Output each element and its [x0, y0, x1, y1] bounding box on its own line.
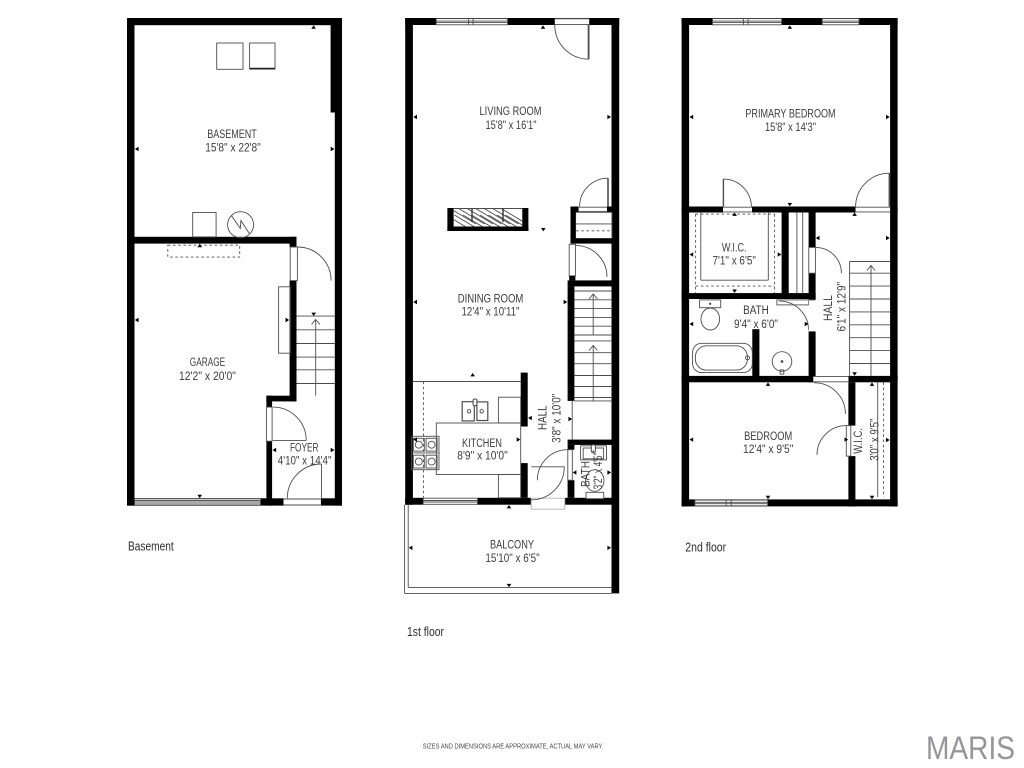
svg-text:FOYER: FOYER [290, 440, 319, 454]
svg-text:GARAGE: GARAGE [190, 355, 225, 369]
svg-text:W.I.C.: W.I.C. [722, 241, 747, 255]
svg-text:8'9" x 10'0": 8'9" x 10'0" [457, 449, 507, 462]
svg-text:15'8" x 16'1": 15'8" x 16'1" [486, 119, 537, 132]
svg-text:LIVING ROOM: LIVING ROOM [480, 104, 542, 118]
svg-text:15'8" x 14'3": 15'8" x 14'3" [765, 121, 816, 134]
svg-text:BALCONY: BALCONY [490, 537, 534, 551]
svg-text:BASEMENT: BASEMENT [207, 127, 257, 141]
svg-text:1st floor: 1st floor [407, 625, 444, 639]
svg-text:6'1" x 12'9": 6'1" x 12'9" [836, 282, 849, 332]
svg-text:15'10" x 6'5": 15'10" x 6'5" [485, 552, 539, 565]
svg-text:MARIS: MARIS [926, 730, 1015, 766]
svg-text:KITCHEN: KITCHEN [462, 436, 502, 450]
svg-text:SIZES AND DIMENSIONS ARE APPRO: SIZES AND DIMENSIONS ARE APPROXIMATE, AC… [423, 744, 604, 751]
svg-text:BATH: BATH [579, 461, 593, 487]
svg-text:7'1" x 6'5": 7'1" x 6'5" [713, 255, 756, 268]
svg-text:3'2" x 4'5": 3'2" x 4'5" [592, 453, 605, 490]
svg-text:9'4" x 6'0": 9'4" x 6'0" [734, 318, 778, 331]
svg-text:12'4" x 10'11": 12'4" x 10'11" [462, 306, 520, 319]
svg-text:Basement: Basement [128, 539, 174, 553]
svg-text:3'8" x 10'0": 3'8" x 10'0" [550, 394, 563, 443]
svg-text:12'2" x 20'0": 12'2" x 20'0" [179, 370, 236, 383]
svg-text:BATH: BATH [743, 303, 769, 317]
svg-text:HALL: HALL [536, 405, 550, 430]
svg-text:3'0" x 9'5": 3'0" x 9'5" [868, 419, 881, 461]
svg-text:2nd floor: 2nd floor [685, 540, 726, 554]
svg-text:PRIMARY BEDROOM: PRIMARY BEDROOM [745, 107, 835, 121]
svg-text:HALL: HALL [821, 295, 835, 321]
svg-text:BEDROOM: BEDROOM [744, 429, 792, 443]
svg-text:4'10" x 14'4": 4'10" x 14'4" [278, 454, 332, 467]
svg-text:12'4" x 9'5": 12'4" x 9'5" [743, 443, 793, 456]
svg-text:W.I.C.: W.I.C. [851, 428, 865, 454]
svg-text:DINING ROOM: DINING ROOM [458, 292, 524, 306]
svg-text:15'8" x 22'8": 15'8" x 22'8" [205, 142, 261, 155]
